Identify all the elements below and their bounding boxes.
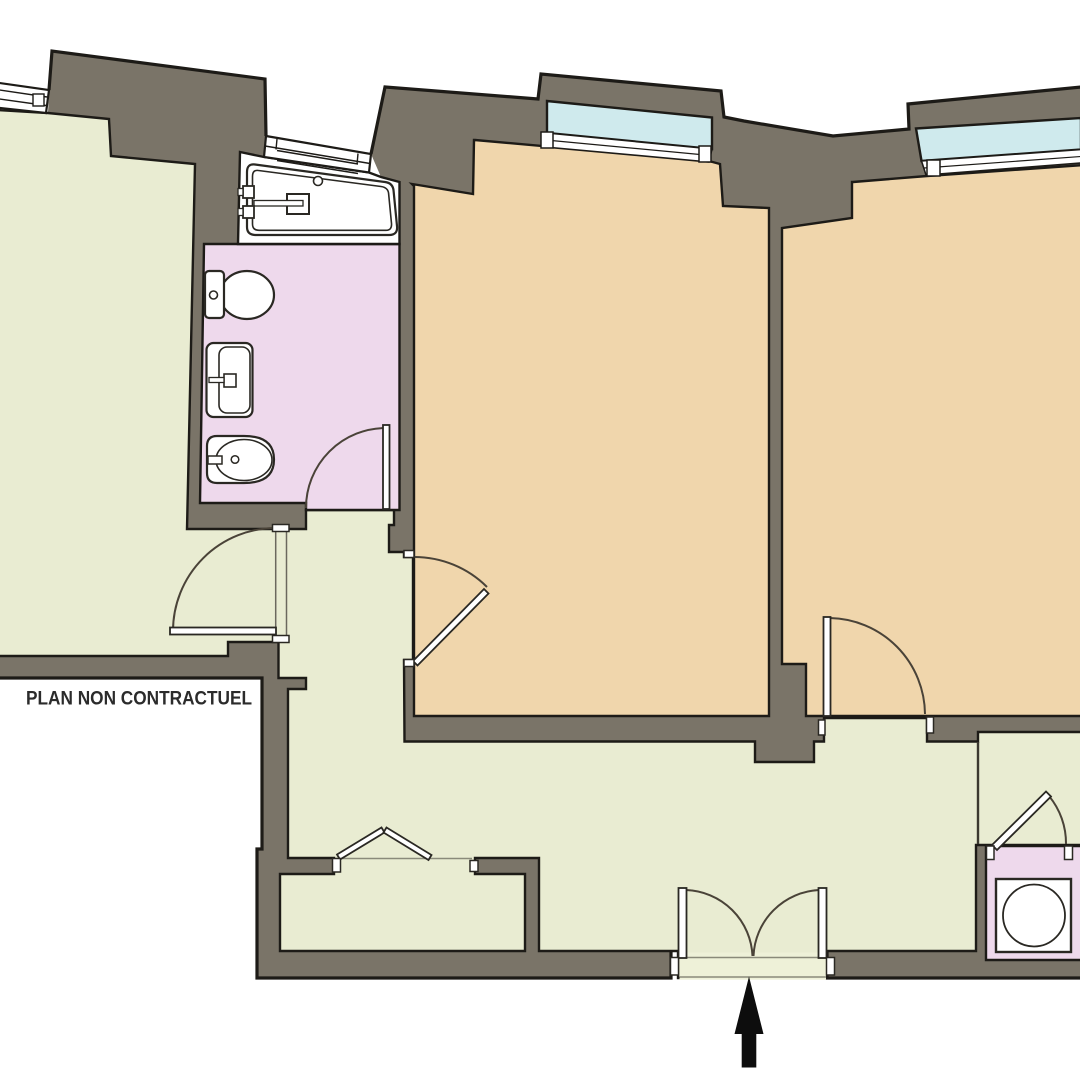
svg-text:PLAN NON CONTRACTUEL: PLAN NON CONTRACTUEL <box>26 689 252 710</box>
